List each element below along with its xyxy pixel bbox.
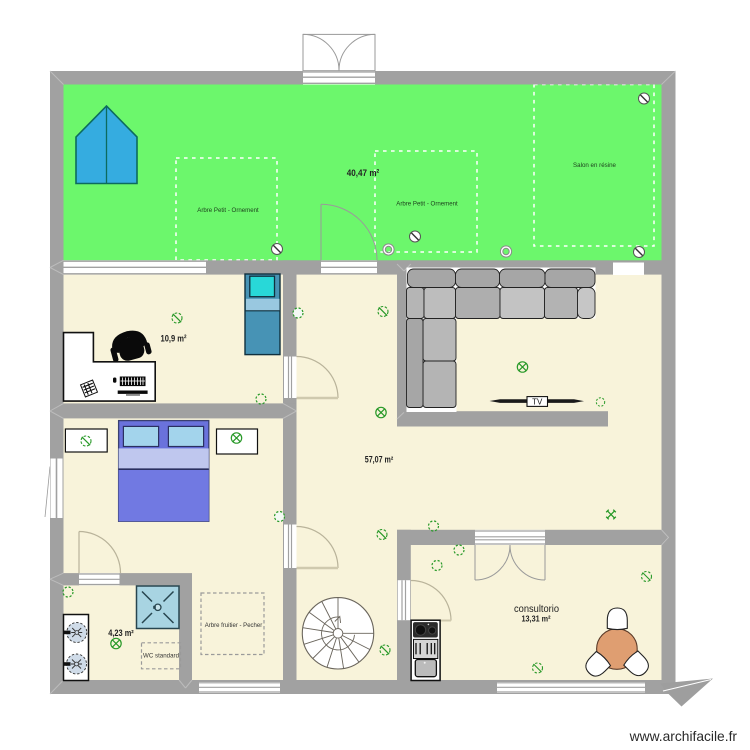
- svg-text:Arbre fruitier - Pecher: Arbre fruitier - Pecher: [205, 622, 263, 629]
- svg-text:10,9 m²: 10,9 m²: [161, 334, 187, 345]
- svg-text:www.archifacile.fr: www.archifacile.fr: [629, 729, 738, 744]
- svg-text:57,07 m²: 57,07 m²: [365, 455, 394, 465]
- svg-text:Salon en résine: Salon en résine: [573, 162, 616, 169]
- svg-text:TV: TV: [532, 398, 543, 407]
- svg-text:WC standard: WC standard: [143, 653, 179, 660]
- svg-text:40,47 m²: 40,47 m²: [347, 168, 380, 179]
- svg-text:13,31 m²: 13,31 m²: [522, 614, 551, 624]
- svg-text:Arbre Petit - Ornement: Arbre Petit - Ornement: [396, 201, 458, 208]
- svg-text:4,23 m²: 4,23 m²: [108, 628, 134, 638]
- svg-text:Arbre Petit - Ornement: Arbre Petit - Ornement: [197, 207, 259, 214]
